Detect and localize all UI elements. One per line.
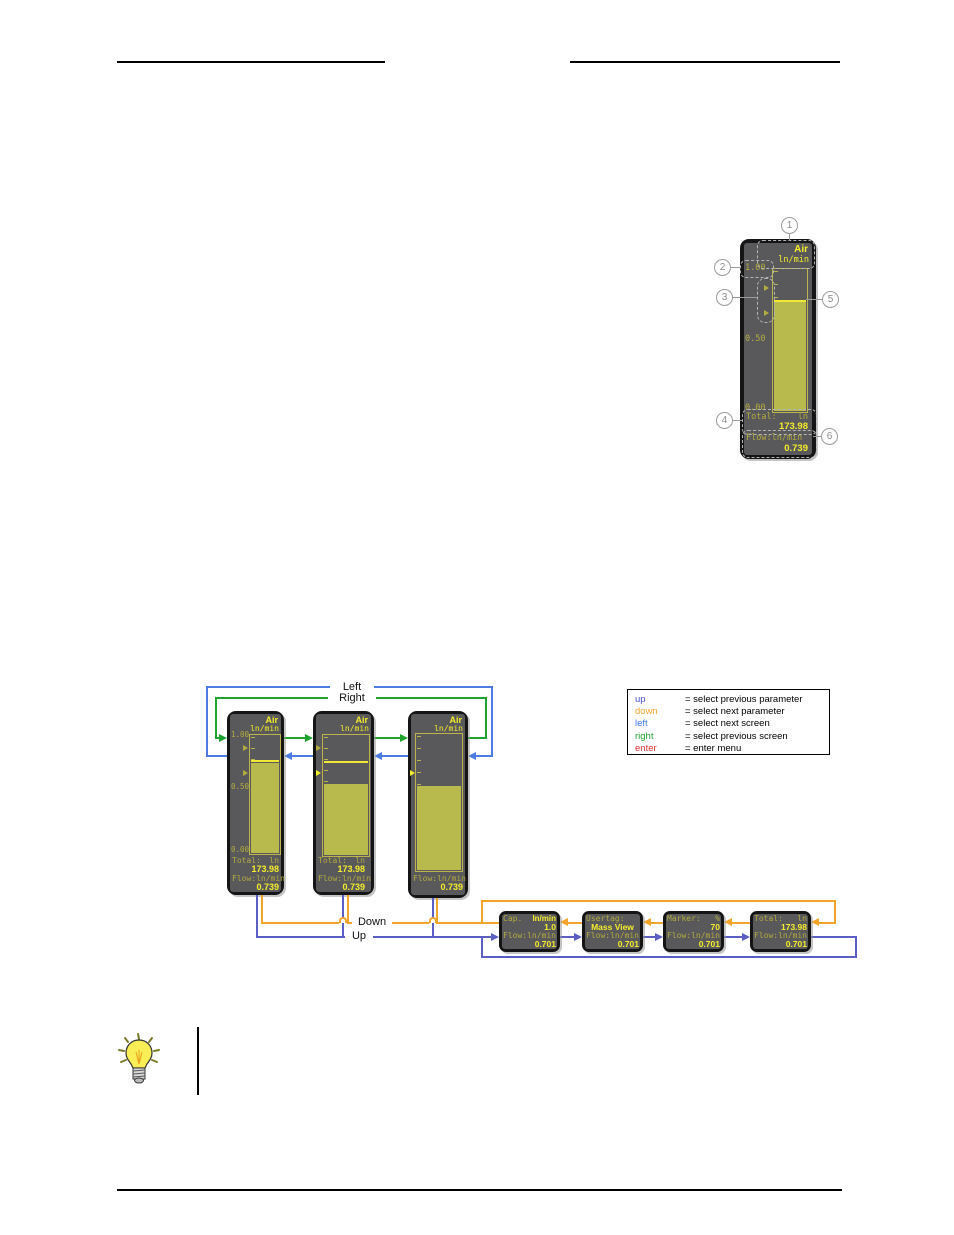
legend-key-enter: enter: [628, 743, 685, 754]
left-arrowhead-screen2: [374, 752, 382, 760]
callout-3: 3: [716, 289, 733, 306]
legend-meaning-enter: = enter menu: [685, 743, 741, 754]
screen2-marker: [324, 761, 368, 763]
down-label: Down: [352, 916, 392, 928]
screen2-bar: [322, 734, 370, 857]
tip-lightbulb-icon: [114, 1030, 164, 1088]
header-rule-left: [117, 61, 385, 63]
down-drop-screen1: [261, 895, 263, 924]
left-loop-left: [206, 686, 208, 757]
right-arrowhead-screen1: [219, 734, 227, 742]
down-arrowhead-param1: [560, 918, 568, 926]
leader-6: [813, 436, 821, 437]
left-loop-right: [491, 686, 493, 757]
down-line-3to2: [651, 922, 663, 924]
right-line-3-out: [468, 737, 487, 739]
legend-meaning-down: = select next parameter: [685, 706, 785, 717]
bar-fill: [774, 302, 806, 411]
screen1-total-value: 173.98: [233, 864, 279, 874]
screen3-flow-value: 0.739: [425, 882, 463, 892]
up-arrowhead-param3: [655, 933, 663, 941]
callout-outline-triangles: [757, 278, 775, 323]
down-loop-top: [481, 900, 836, 902]
left-arrowhead-screen3: [468, 752, 476, 760]
legend-row-enter: enter = enter menu: [628, 743, 829, 755]
screen3-fill: [417, 786, 461, 870]
right-loop-left: [215, 697, 217, 739]
down-loop-right: [834, 900, 836, 924]
legend-meaning-left: = select next screen: [685, 718, 770, 729]
screen2-flow-value: 0.739: [329, 882, 365, 892]
left-line-3to2: [382, 755, 408, 757]
leader-1: [789, 233, 790, 241]
right-label: Right: [328, 692, 376, 704]
screen1-marker: [251, 760, 279, 762]
down-line-hop1: [339, 917, 347, 923]
down-drop-screen2: [347, 895, 349, 924]
tip-separator-rule: [197, 1027, 199, 1095]
right-arrowhead-screen3: [400, 734, 408, 742]
screen2-triangle-upper-icon: [316, 745, 321, 751]
up-loop-right: [855, 936, 857, 958]
legend-meaning-up: = select previous parameter: [685, 694, 803, 705]
screen1-scale-mid: 0.50: [231, 782, 249, 791]
down-line-into-param4: [819, 922, 836, 924]
screen2-triangle-lower-icon: [316, 770, 321, 776]
legend-key-down: down: [628, 706, 685, 717]
screen2-fill: [324, 784, 368, 855]
up-line-2to3: [643, 936, 655, 938]
screen1-triangle-lower-icon: [243, 770, 248, 776]
down-loop-left: [481, 900, 483, 924]
leader-3: [732, 297, 757, 298]
down-line-4to3: [732, 922, 750, 924]
down-line-seg3: [437, 922, 499, 924]
up-loop-left: [481, 936, 483, 958]
up-line: [256, 936, 493, 938]
screen1-scale-top: 1.00: [231, 730, 249, 739]
right-line-1to2: [284, 737, 305, 739]
screen1-triangle-upper-icon: [243, 745, 248, 751]
up-arrowhead-param2: [574, 933, 582, 941]
callout-outline-scale: [740, 260, 774, 278]
screen1-flow-value: 0.739: [243, 882, 279, 892]
param1-flow-value: 0.701: [520, 939, 556, 949]
bar-graph: [772, 268, 808, 413]
up-loop-out-param4: [811, 936, 857, 938]
leader-5: [806, 299, 822, 300]
down-line-hop2: [429, 917, 437, 923]
manual-page: Air ln/min 1.00 0.50 0.00 Total: ln 173.…: [0, 0, 954, 1235]
right-loop-right: [485, 697, 487, 739]
key-legend: up = select previous parameter down = se…: [627, 689, 830, 755]
param2-flow-value: 0.701: [603, 939, 639, 949]
left-line-into-screen1: [206, 755, 227, 757]
leader-2: [730, 267, 740, 268]
callout-1: 1: [781, 217, 798, 234]
scale-mid-label: 0.50: [745, 334, 765, 344]
screen3-triangle-icon: [410, 770, 415, 776]
callout-5: 5: [822, 291, 839, 308]
legend-row-left: left = select next screen: [628, 718, 829, 730]
callout-4: 4: [716, 412, 733, 429]
up-line-1to2: [560, 936, 574, 938]
callout-6: 6: [821, 428, 838, 445]
param3-flow-value: 0.701: [684, 939, 720, 949]
screen3-bar: [415, 733, 463, 872]
left-arrowhead-screen1: [284, 752, 292, 760]
screen3-unit: ln/min: [411, 724, 463, 733]
up-arrowhead-param4: [742, 933, 750, 941]
right-arrowhead-screen2: [305, 734, 313, 742]
screen1-bar: [249, 734, 281, 855]
up-loop-bottom: [481, 956, 857, 958]
legend-key-right: right: [628, 731, 685, 742]
legend-meaning-right: = select previous screen: [685, 731, 788, 742]
screen1-fill: [251, 763, 279, 853]
down-arrowhead-param3: [724, 918, 732, 926]
callout-2: 2: [714, 259, 731, 276]
down-line-seg1: [261, 922, 339, 924]
footer-rule: [117, 1189, 842, 1191]
callout-outline-flow: [742, 430, 817, 458]
legend-key-left: left: [628, 718, 685, 729]
screen2-total-value: 173.98: [319, 864, 365, 874]
left-line-2to1: [292, 755, 313, 757]
down-arrowhead-param4: [811, 918, 819, 926]
legend-row-up: up = select previous parameter: [628, 693, 829, 705]
up-line-3to4: [724, 936, 742, 938]
up-drop-screen1: [256, 895, 258, 938]
legend-key-up: up: [628, 694, 685, 705]
leader-4: [732, 420, 742, 421]
right-line-2to3: [374, 737, 400, 739]
screen2-unit: ln/min: [316, 724, 369, 733]
param4-flow-value: 0.701: [771, 939, 807, 949]
up-label: Up: [345, 930, 373, 942]
up-arrowhead-param1: [491, 933, 499, 941]
header-rule-right: [570, 61, 840, 63]
down-arrowhead-param2: [643, 918, 651, 926]
down-line-2to1: [568, 922, 582, 924]
legend-row-right: right = select previous screen: [628, 730, 829, 742]
left-line-loop-to3: [476, 755, 493, 757]
marker-line: [774, 300, 806, 302]
legend-row-down: down = select next parameter: [628, 705, 829, 717]
screen1-scale-bottom: 0.00: [231, 845, 249, 854]
